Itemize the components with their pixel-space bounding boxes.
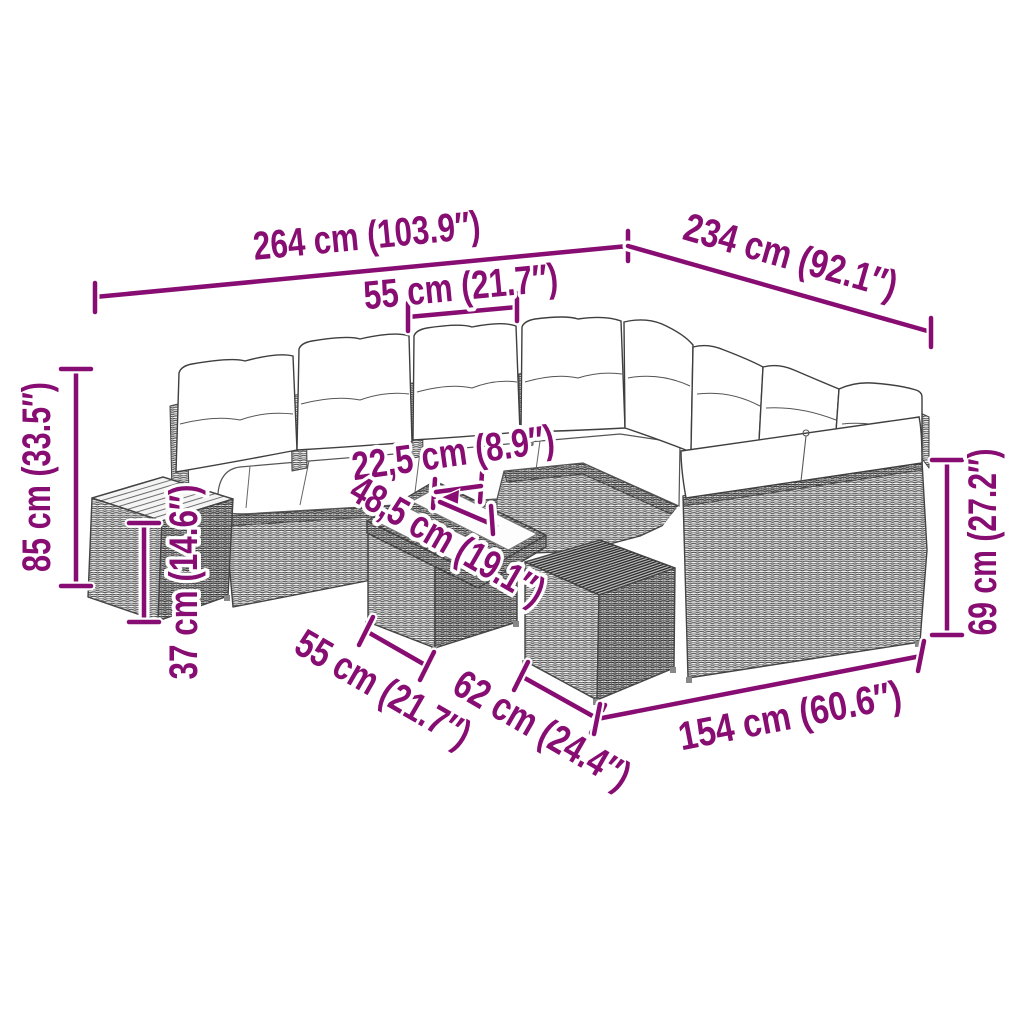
svg-text:69 cm (27.2″): 69 cm (27.2″): [961, 449, 1005, 636]
svg-text:37 cm (14.6″): 37 cm (14.6″): [162, 485, 206, 680]
svg-text:85 cm (33.5″): 85 cm (33.5″): [15, 382, 59, 572]
